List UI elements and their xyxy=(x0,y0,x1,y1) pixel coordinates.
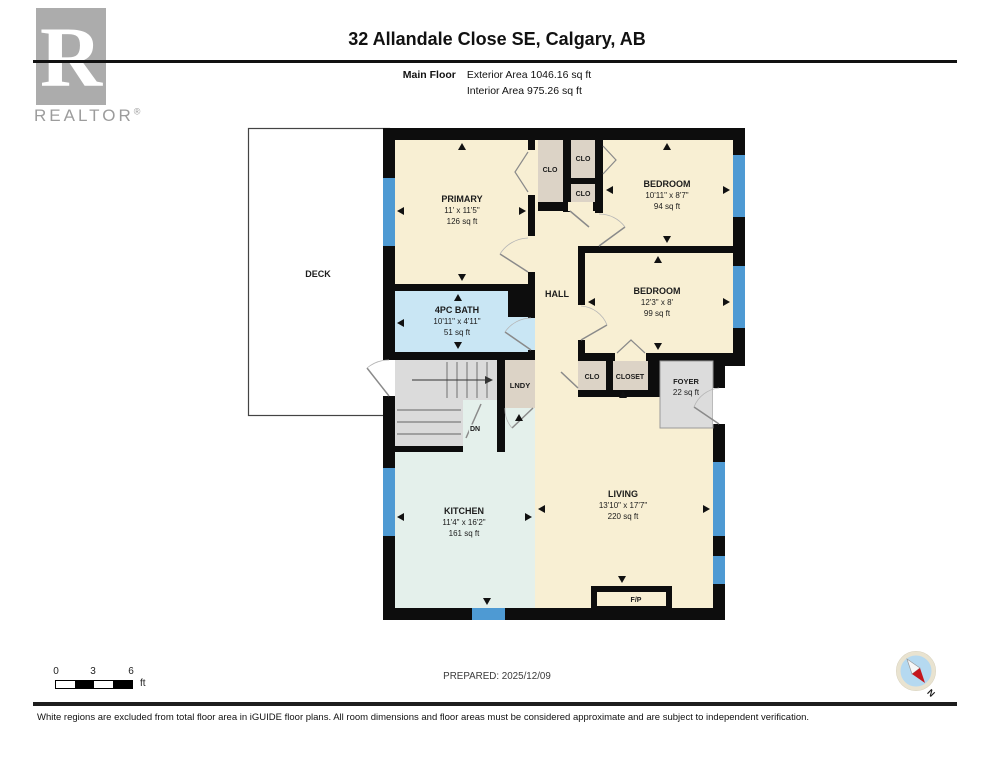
label-closet-hall: CLOSET xyxy=(616,374,645,381)
realtor-wordmark-text: REALTOR xyxy=(34,106,134,125)
footer-divider xyxy=(33,702,957,706)
label-primary-dims: 11' x 11'5" xyxy=(444,206,480,215)
label-bath-dims: 10'11" x 4'11" xyxy=(433,317,480,326)
floor-summary: Main Floor Exterior Area 1046.16 sq ft I… xyxy=(0,67,994,99)
page-title: 32 Allandale Close SE, Calgary, AB xyxy=(0,29,994,50)
label-clo-primary: CLO xyxy=(543,167,558,174)
window-bedroom-top xyxy=(733,155,745,217)
window-living-1 xyxy=(713,462,725,536)
header-divider xyxy=(33,60,957,63)
room-deck: DECK xyxy=(249,129,390,416)
label-primary-area: 126 sq ft xyxy=(447,217,478,226)
label-clo-mid: CLO xyxy=(576,191,591,198)
label-laundry: LNDY xyxy=(510,381,530,390)
label-bedroom-top-dims: 10'11" x 8'7" xyxy=(645,191,688,200)
label-living: LIVING xyxy=(608,489,638,499)
label-kitchen-dims: 11'4" x 16'2" xyxy=(442,518,485,527)
registered-mark: ® xyxy=(134,106,141,116)
label-bedroom-top-area: 94 sq ft xyxy=(654,202,681,211)
fireplace-label: F/P xyxy=(631,597,642,604)
prepared-date: PREPARED: 2025/12/09 xyxy=(0,671,994,682)
label-bedroom-mid-area: 99 sq ft xyxy=(644,309,671,318)
window-kitchen xyxy=(383,468,395,536)
disclaimer-text: White regions are excluded from total fl… xyxy=(37,712,809,723)
window-bedroom-mid xyxy=(733,266,745,328)
label-foyer: FOYER xyxy=(673,377,699,386)
realtor-wordmark: REALTOR® xyxy=(34,106,140,126)
stairs-lower-run xyxy=(395,400,463,446)
label-bath: 4PC BATH xyxy=(435,305,479,315)
label-clo-hall: CLO xyxy=(585,374,600,381)
label-bedroom-mid: BEDROOM xyxy=(634,286,681,296)
label-kitchen-area: 161 sq ft xyxy=(449,529,480,538)
compass-north-label: N xyxy=(925,687,937,699)
label-bedroom-top: BEDROOM xyxy=(644,179,691,189)
window-primary xyxy=(383,178,395,246)
label-bedroom-mid-dims: 12'3" x 8' xyxy=(641,298,674,307)
label-hall: HALL xyxy=(545,289,569,299)
exterior-area: Exterior Area 1046.16 sq ft xyxy=(467,67,591,83)
label-primary: PRIMARY xyxy=(441,194,482,204)
window-living-2 xyxy=(713,556,725,584)
floor-plan: DECK xyxy=(0,0,994,768)
label-clo-top: CLO xyxy=(576,156,591,163)
label-living-area: 220 sq ft xyxy=(608,512,639,521)
window-kitchen-south xyxy=(472,608,505,620)
fireplace: F/P xyxy=(591,586,672,612)
room-label-deck: DECK xyxy=(305,269,331,279)
label-foyer-area: 22 sq ft xyxy=(673,388,700,397)
label-kitchen: KITCHEN xyxy=(444,506,484,516)
label-living-dims: 13'10" x 17'7" xyxy=(599,501,647,510)
floor-label: Main Floor xyxy=(403,67,456,99)
label-bath-area: 51 sq ft xyxy=(444,328,471,337)
label-stairs-dn: DN xyxy=(470,426,480,433)
interior-area: Interior Area 975.26 sq ft xyxy=(467,83,591,99)
